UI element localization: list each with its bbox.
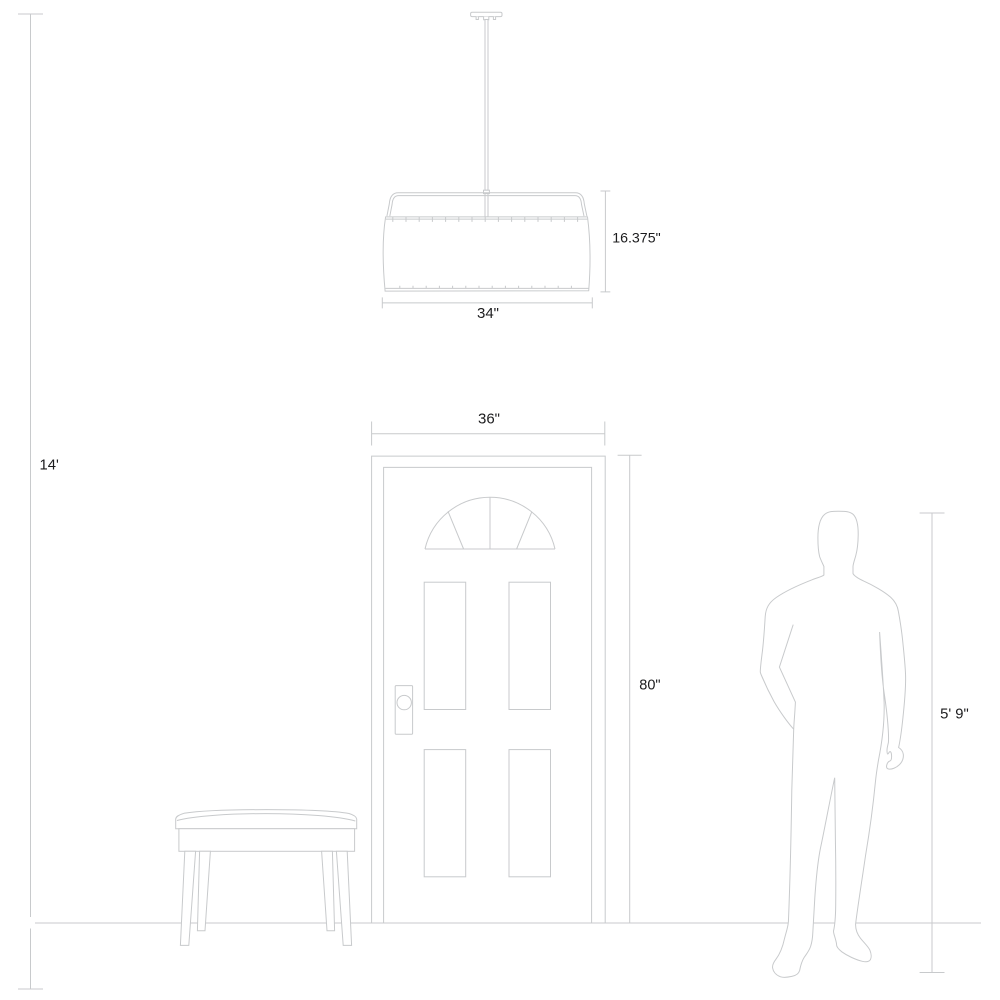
svg-text:5' 9": 5' 9" [940, 707, 969, 723]
svg-text:34": 34" [477, 305, 499, 322]
svg-text:16.375": 16.375" [612, 231, 660, 247]
svg-text:14': 14' [40, 458, 59, 474]
svg-text:36": 36" [478, 411, 500, 428]
svg-text:80": 80" [639, 677, 660, 693]
